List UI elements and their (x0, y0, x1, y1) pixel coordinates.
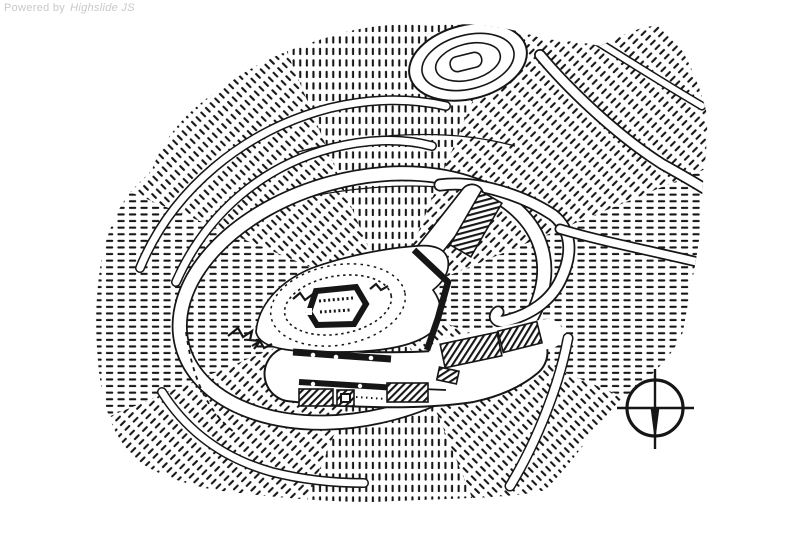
watermark-brand: Highslide JS (70, 2, 135, 14)
keep-pentagon (306, 287, 366, 325)
wall-opening (334, 355, 339, 360)
building-2-tower (337, 390, 354, 406)
hill-mass (0, 0, 800, 533)
wall-opening (311, 353, 316, 358)
powered-by-watermark: Powered byHighslide JS (4, 2, 135, 14)
keep-gate-notch (306, 308, 312, 315)
highslide-image[interactable] (0, 0, 800, 533)
wall-opening (358, 384, 362, 388)
wall-opening (311, 382, 315, 386)
site-plan-drawing (0, 0, 800, 533)
building-1 (299, 389, 333, 406)
watermark-prefix: Powered by (4, 2, 65, 14)
building-3 (387, 383, 428, 402)
wall-opening (369, 356, 374, 361)
